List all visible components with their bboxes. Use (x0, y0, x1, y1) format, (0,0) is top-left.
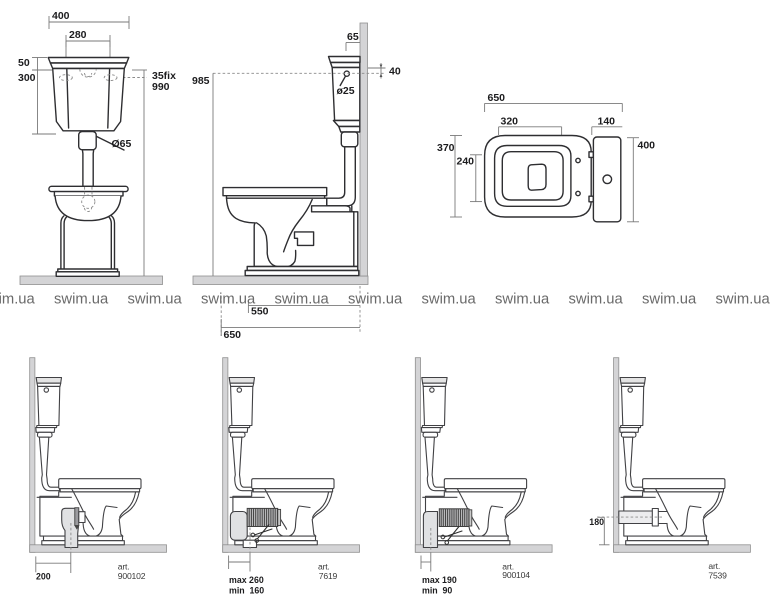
svg-text:swim.ua: swim.ua (128, 292, 183, 308)
svg-text:7539: 7539 (708, 571, 727, 581)
svg-text:650: 650 (488, 92, 506, 104)
svg-text:swim.ua: swim.ua (495, 292, 550, 308)
svg-text:swim.ua: swim.ua (569, 292, 624, 308)
svg-text:swim.ua: swim.ua (348, 292, 403, 308)
svg-text:art.: art. (318, 561, 330, 571)
svg-text:Ø65: Ø65 (112, 138, 132, 150)
svg-text:180: 180 (589, 517, 604, 527)
svg-text:max 260: max 260 (229, 575, 264, 585)
svg-text:art.: art. (708, 561, 720, 571)
svg-text:swim.ua: swim.ua (54, 292, 109, 308)
svg-text:300: 300 (18, 72, 36, 84)
svg-text:320: 320 (501, 116, 519, 128)
svg-text:swim.ua: swim.ua (201, 292, 256, 308)
svg-text:990: 990 (152, 81, 170, 93)
svg-text:900102: 900102 (118, 571, 146, 581)
svg-text:swim.ua: swim.ua (275, 292, 330, 308)
svg-text:400: 400 (638, 140, 656, 152)
svg-text:min 90: min 90 (422, 586, 452, 596)
svg-text:240: 240 (457, 156, 475, 168)
svg-text:max 190: max 190 (422, 575, 457, 585)
svg-text:swim.ua: swim.ua (716, 292, 770, 308)
svg-text:swim.ua: swim.ua (0, 292, 36, 308)
svg-text:65: 65 (347, 31, 359, 43)
svg-text:140: 140 (598, 116, 616, 128)
svg-text:400: 400 (52, 10, 70, 22)
svg-text:art.: art. (118, 561, 130, 571)
svg-text:min 160: min 160 (229, 586, 264, 596)
svg-text:swim.ua: swim.ua (642, 292, 697, 308)
svg-text:200: 200 (36, 571, 51, 581)
svg-text:swim.ua: swim.ua (422, 292, 477, 308)
svg-text:40: 40 (389, 66, 401, 78)
svg-text:985: 985 (192, 75, 210, 87)
svg-text:370: 370 (437, 142, 455, 154)
svg-text:280: 280 (69, 29, 87, 41)
svg-text:ø25: ø25 (337, 85, 355, 97)
svg-text:50: 50 (18, 57, 30, 69)
svg-text:7619: 7619 (319, 571, 338, 581)
svg-text:650: 650 (224, 329, 242, 341)
svg-text:900104: 900104 (502, 570, 530, 580)
